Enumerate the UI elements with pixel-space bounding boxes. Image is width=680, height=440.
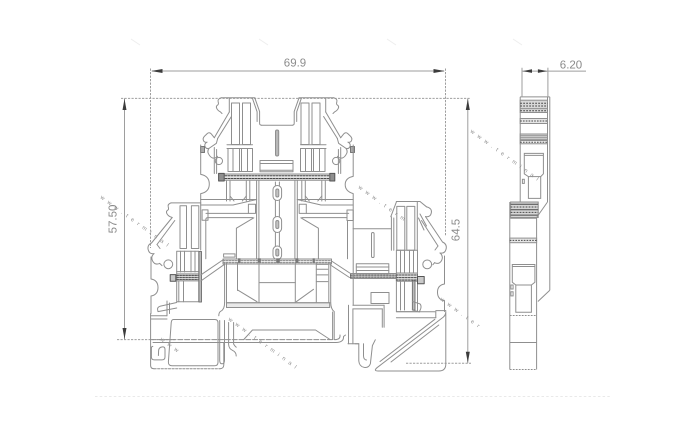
- svg-text:69.9: 69.9: [284, 58, 306, 70]
- svg-text:64.5: 64.5: [451, 219, 463, 241]
- svg-text:6.20: 6.20: [560, 59, 582, 71]
- svg-text:57.50: 57.50: [108, 205, 120, 234]
